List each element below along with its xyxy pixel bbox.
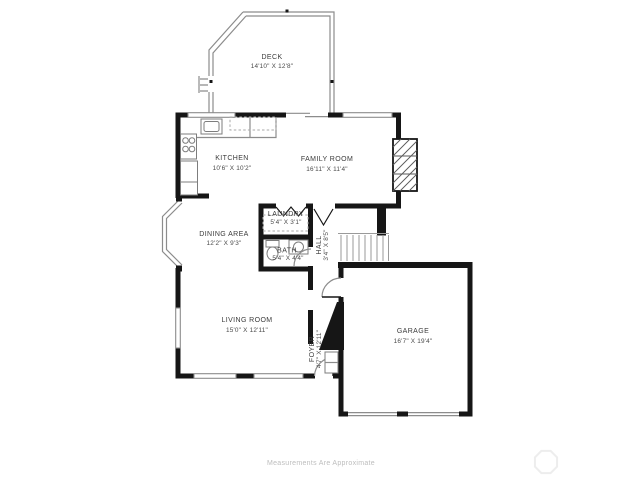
bath-dims: 5'4" X 4'4" <box>272 255 303 262</box>
floor-plan-page: DECK 14'10" X 12'8" <box>0 0 640 480</box>
bath: BATH 5'4" X 4'4" <box>266 240 311 266</box>
stove <box>181 134 197 159</box>
foyer-closet <box>325 352 338 373</box>
disclaimer-text: Measurements Are Approximate <box>267 460 375 467</box>
garage-entry-door <box>322 278 341 297</box>
family-room: FAMILY ROOM 16'11" X 11'4" <box>301 139 417 191</box>
garage-dims: 16'7" X 19'4" <box>394 338 433 345</box>
family-room-label: FAMILY ROOM <box>301 156 353 163</box>
dining-area-label: DINING AREA <box>199 231 249 238</box>
kitchen: KITCHEN 10'6" X 10'2" <box>181 117 277 195</box>
stair-wall <box>377 204 386 236</box>
hall-dims: 3'4" X 8'5" <box>323 229 330 260</box>
kitchen-label: KITCHEN <box>215 155 249 162</box>
family-room-dims: 16'11" X 11'4" <box>306 166 348 173</box>
kitchen-sink <box>201 119 222 134</box>
living-room-dims: 15'0" X 12'11" <box>226 327 268 334</box>
deck-dims: 14'10" X 12'8" <box>251 63 293 70</box>
hall-closet-doors <box>314 209 333 225</box>
deck: DECK 14'10" X 12'8" <box>199 10 334 115</box>
family-room-window <box>343 113 392 118</box>
living-room-front-window-1 <box>194 374 236 379</box>
living-room: LIVING ROOM 15'0" X 12'11" <box>221 317 272 334</box>
laundry-dims: 5'4" X 3'1" <box>270 219 301 226</box>
bay-window <box>163 196 183 272</box>
fireplace <box>393 139 417 191</box>
garage-label: GARAGE <box>397 328 429 335</box>
kitchen-window <box>188 113 235 118</box>
kitchen-dims: 10'6" X 10'2" <box>213 165 252 172</box>
living-room-front-window-2 <box>254 374 303 379</box>
kitchen-cabinet <box>181 182 198 195</box>
living-room-label: LIVING ROOM <box>221 317 272 324</box>
refrigerator <box>181 161 198 182</box>
foyer-dims: 4'7" X 12'11" <box>316 330 323 368</box>
upper-cabinets <box>230 117 276 130</box>
octagon-logo-icon <box>535 451 557 473</box>
hall-label: HALL <box>316 235 323 254</box>
garage: GARAGE 16'7" X 19'4" <box>319 262 473 417</box>
deck-label: DECK <box>261 54 282 61</box>
hall: HALL 3'4" X 8'5" <box>314 209 333 261</box>
living-room-side-window <box>176 308 181 348</box>
stairs <box>338 234 389 262</box>
dimension-ticks <box>210 10 334 84</box>
laundry-label: LAUNDRY <box>268 211 304 218</box>
bath-label: BATH <box>277 248 297 255</box>
floor-plan-drawing: DECK 14'10" X 12'8" <box>0 0 640 480</box>
foyer-label: FOYER <box>309 336 316 362</box>
deck-steps <box>199 76 208 93</box>
sliding-door-to-deck <box>286 113 328 116</box>
laundry: LAUNDRY 5'4" X 3'1" <box>263 207 308 231</box>
dining-area-dims: 12'2" X 9'3" <box>207 240 242 247</box>
dining-area: DINING AREA 12'2" X 9'3" <box>199 231 249 247</box>
